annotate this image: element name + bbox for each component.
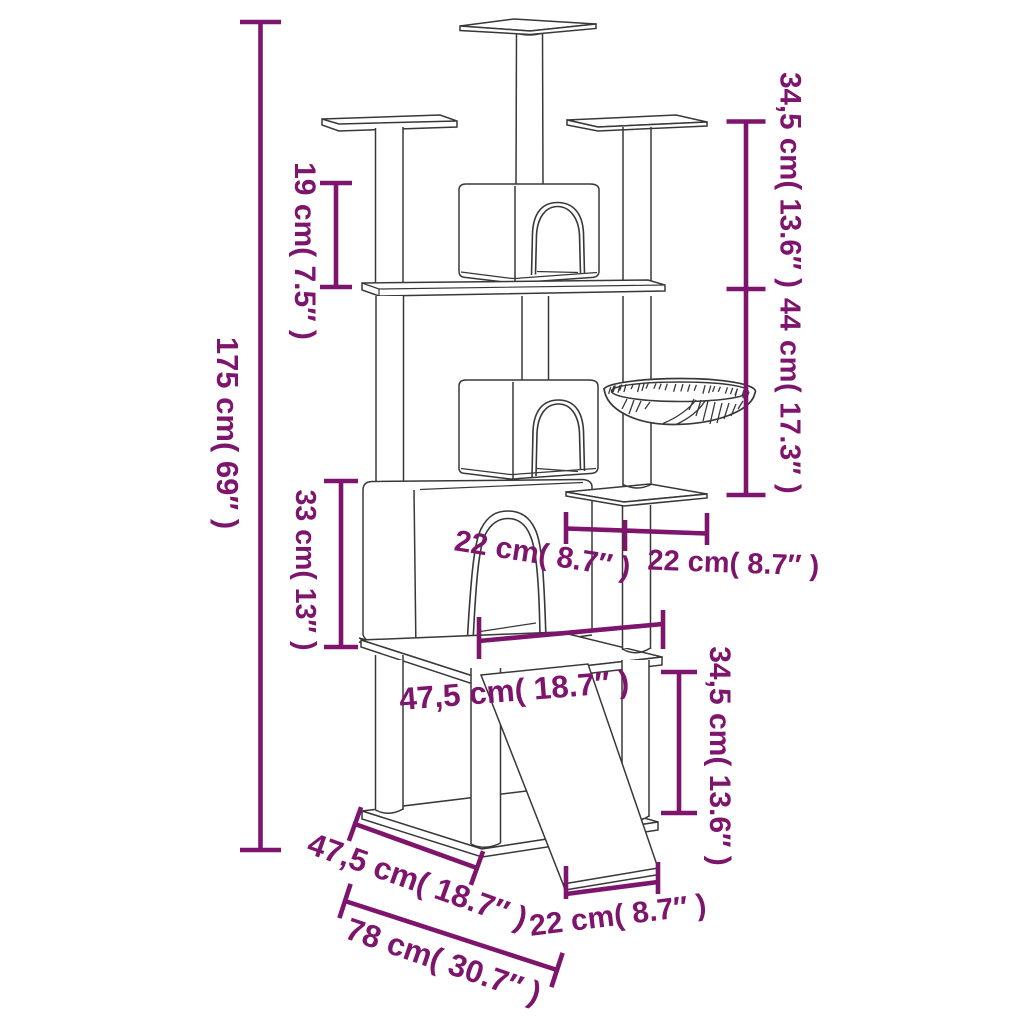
svg-text:19 cm( 7.5″ ): 19 cm( 7.5″ ) — [288, 162, 321, 340]
svg-text:44 cm( 17.3″ ): 44 cm( 17.3″ ) — [774, 298, 806, 494]
svg-text:175 cm( 69″ ): 175 cm( 69″ ) — [210, 337, 245, 529]
svg-text:22 cm( 8.7″ ): 22 cm( 8.7″ ) — [647, 545, 820, 583]
svg-text:33 cm( 13″ ): 33 cm( 13″ ) — [289, 490, 321, 651]
svg-text:34,5 cm( 13.6″ ): 34,5 cm( 13.6″ ) — [703, 646, 736, 866]
svg-text:34,5 cm( 13.6″ ): 34,5 cm( 13.6″ ) — [774, 72, 807, 288]
